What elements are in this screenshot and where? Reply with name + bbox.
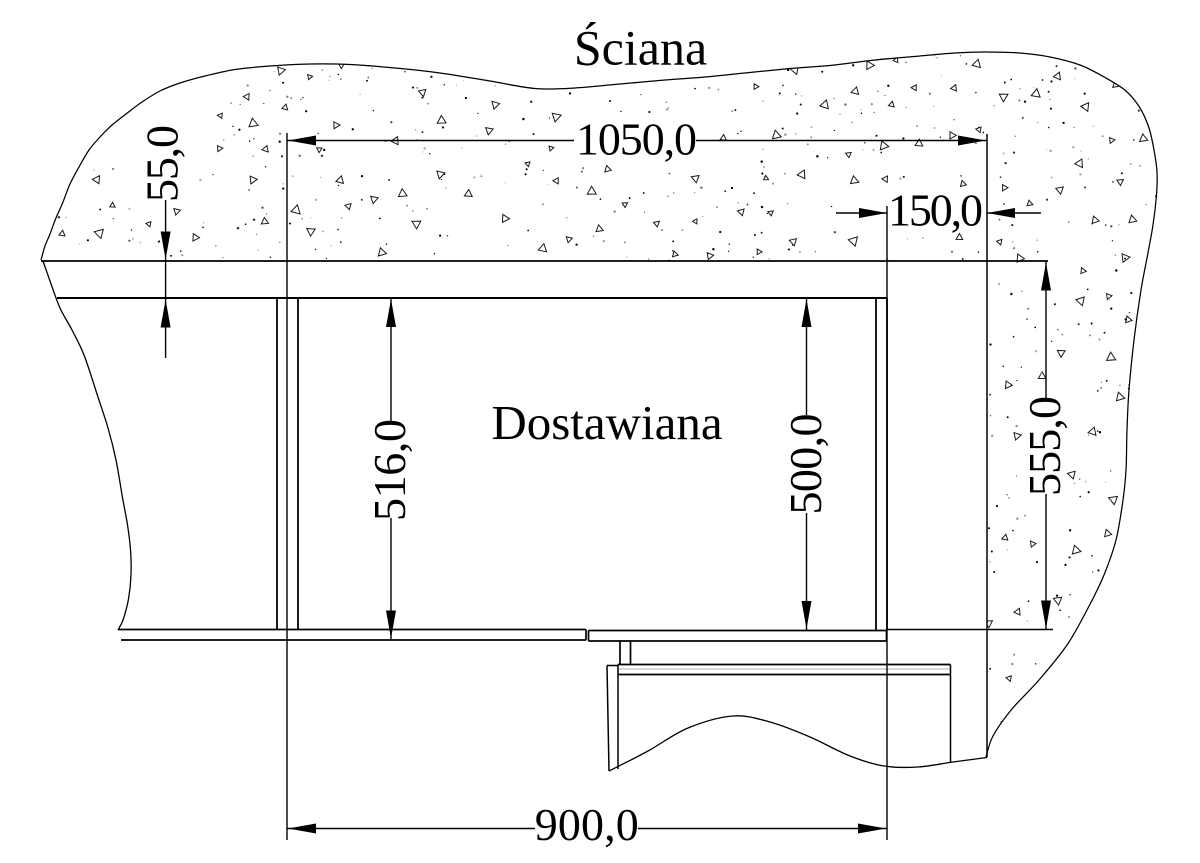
svg-text:55,0: 55,0 bbox=[137, 125, 188, 202]
svg-text:1050,0: 1050,0 bbox=[576, 114, 697, 165]
svg-text:555,0: 555,0 bbox=[1019, 396, 1070, 496]
svg-text:500,0: 500,0 bbox=[780, 414, 831, 515]
svg-text:516,0: 516,0 bbox=[364, 419, 415, 521]
svg-text:900,0: 900,0 bbox=[535, 799, 639, 850]
svg-text:150,0: 150,0 bbox=[888, 184, 983, 235]
svg-text:Dostawiana: Dostawiana bbox=[491, 395, 723, 450]
svg-text:Ściana: Ściana bbox=[574, 20, 707, 76]
